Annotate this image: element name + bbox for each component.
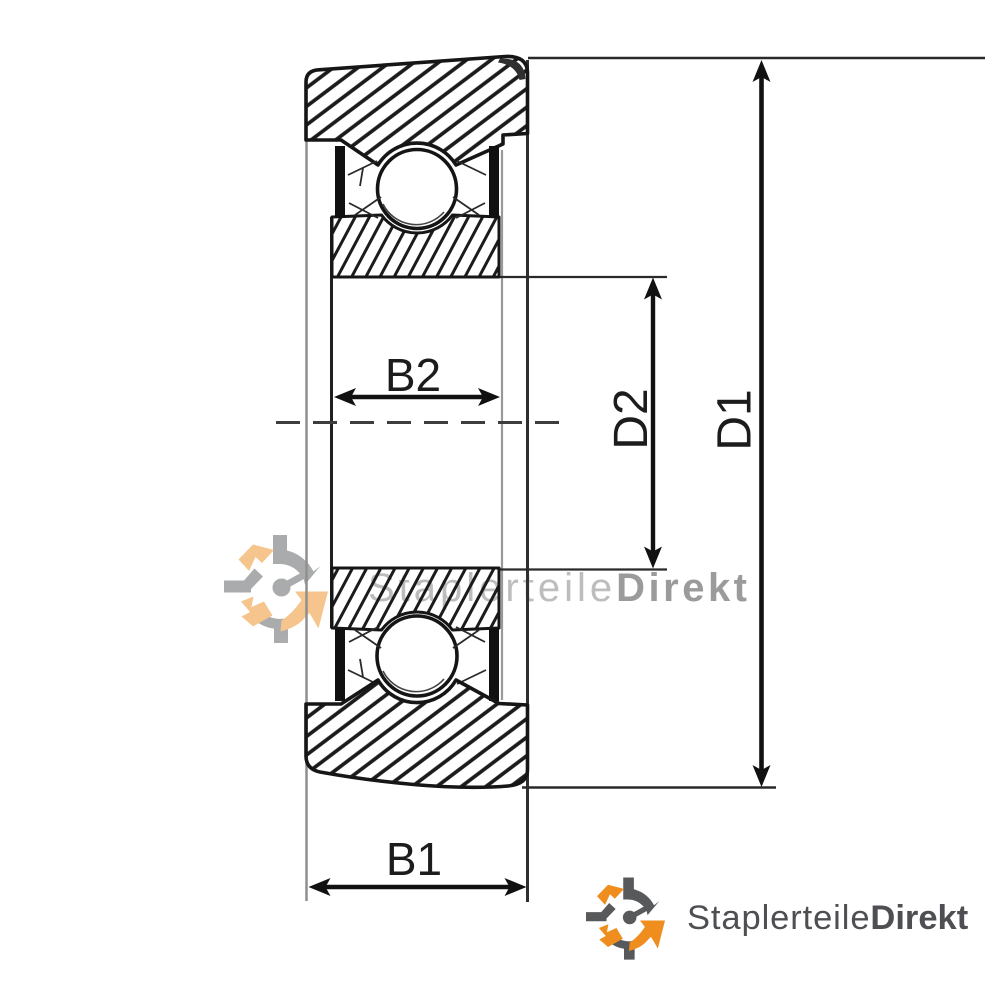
svg-text:D2: D2	[605, 388, 658, 449]
svg-text:D1: D1	[709, 389, 762, 450]
svg-text:B1: B1	[386, 833, 442, 885]
svg-text:B2: B2	[385, 349, 441, 401]
svg-text:StaplerteileDirekt: StaplerteileDirekt	[687, 899, 969, 937]
